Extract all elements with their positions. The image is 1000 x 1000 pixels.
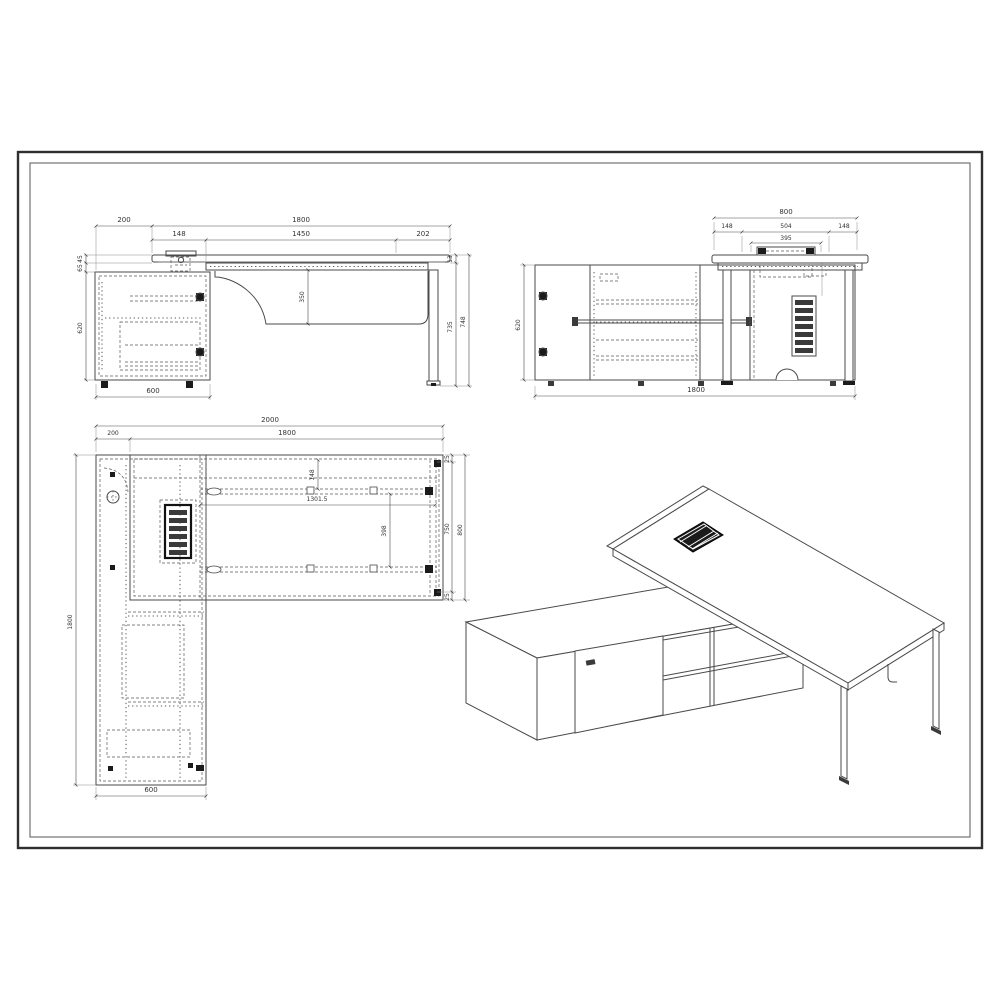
- credenza-foot: [638, 381, 644, 386]
- dim-top-thickness: 13: [447, 255, 454, 263]
- front-right-leg: [841, 686, 847, 779]
- dim-box-frame: 504: [780, 223, 792, 230]
- front-elevation-dimensions: 200 1800 148 1450 202 350 13 735 748: [77, 216, 472, 400]
- dim-cabinet-height: 620: [77, 322, 84, 334]
- desk-cabinet-bracket: [166, 251, 196, 271]
- dim-offset-left: 200: [117, 216, 130, 224]
- right-leg: [427, 270, 440, 386]
- plan-cable-tray: [160, 500, 196, 563]
- credenza-hinge-bottom: [539, 348, 547, 356]
- technical-drawing-sheet: 200 1800 148 1450 202 350 13 735 748: [0, 0, 1000, 1000]
- dim-inner-depth: 750: [444, 523, 451, 535]
- dim-plan-credenza-depth: 600: [144, 786, 157, 794]
- rail-connector: [307, 565, 314, 572]
- dim-edge-top: 25: [444, 455, 451, 463]
- rail-connector: [307, 487, 314, 494]
- dim-top-inset-left: 148: [172, 230, 185, 238]
- rail-connector: [207, 488, 221, 495]
- cable-hook: [888, 664, 897, 682]
- dim-underside-height: 735: [447, 321, 454, 333]
- dim-box-cutout: 395: [780, 235, 792, 242]
- modesty-panel: [215, 271, 428, 324]
- dim-credenza-length: 1800: [687, 386, 705, 394]
- vent-grille: [792, 263, 822, 356]
- credenza-hinge-top: [539, 292, 547, 300]
- dim-overall-length: 2000: [261, 416, 279, 424]
- dim-overhang-left: 148: [721, 223, 733, 230]
- desk-leg-front: [723, 270, 731, 381]
- dim-credenza-height: 620: [515, 319, 522, 331]
- credenza-foot: [830, 381, 836, 386]
- dim-modesty-height: 350: [299, 291, 306, 303]
- dim-rail-length: 1301.5: [307, 496, 328, 503]
- dim-top-clear-span: 1450: [292, 230, 310, 238]
- plan-view: 2000 200 1800 148 1301.5 398 25 750 25 8…: [67, 416, 470, 800]
- dim-top-inset-right: 202: [416, 230, 429, 238]
- hinge-bottom: [196, 348, 204, 356]
- credenza-foot: [548, 381, 554, 386]
- dim-desk-depth: 800: [779, 208, 792, 216]
- dim-cabinet-depth: 600: [146, 387, 159, 395]
- drawing-canvas: 200 1800 148 1450 202 350 13 735 748: [0, 0, 1000, 1000]
- dim-desk-length: 1800: [278, 429, 296, 437]
- door-swing-arc: [104, 468, 128, 492]
- desktop: [152, 255, 450, 270]
- rail-connector: [370, 487, 377, 494]
- dim-rail-setback: 148: [309, 469, 316, 481]
- plan-hinge: [110, 565, 115, 570]
- dim-overall-height: 748: [460, 316, 467, 328]
- rail-connector: [370, 565, 377, 572]
- plan-hinge: [110, 472, 115, 477]
- left-cabinet: [95, 272, 210, 388]
- base-cutout-arch: [776, 369, 798, 380]
- rail-end-block: [425, 487, 433, 495]
- dim-rail-spacing: 398: [381, 525, 388, 537]
- plan-dimensions: 2000 200 1800 148 1301.5 398 25 750 25 8…: [67, 416, 470, 800]
- rail-connector: [207, 566, 221, 573]
- front-elevation-view: 200 1800 148 1450 202 350 13 735 748: [77, 216, 472, 400]
- dim-gap-lower: 65: [77, 264, 84, 272]
- back-right-leg: [933, 629, 939, 729]
- cabinet-foot-right: [186, 381, 193, 388]
- dim-plan-desk-depth: 800: [457, 524, 464, 536]
- corner-bracket: [434, 460, 441, 467]
- dim-overall-width: 1800: [292, 216, 310, 224]
- desk-leg-back: [845, 270, 853, 381]
- cabinet-foot-left: [101, 381, 108, 388]
- dim-edge-bottom: 25: [444, 593, 451, 601]
- dim-plan-offset-left: 200: [107, 430, 119, 437]
- dim-gap-top: 45: [77, 255, 84, 263]
- dim-plan-credenza-length: 1800: [67, 614, 74, 629]
- corner-bracket: [434, 589, 441, 596]
- dim-overhang-right: 148: [838, 223, 850, 230]
- side-elevation-view: 800 148 504 148 395 620 1800: [515, 208, 868, 400]
- grommet-circle: [107, 491, 119, 503]
- isometric-view: [0, 486, 944, 785]
- rail-end-block: [425, 565, 433, 573]
- hinge-top: [196, 293, 204, 301]
